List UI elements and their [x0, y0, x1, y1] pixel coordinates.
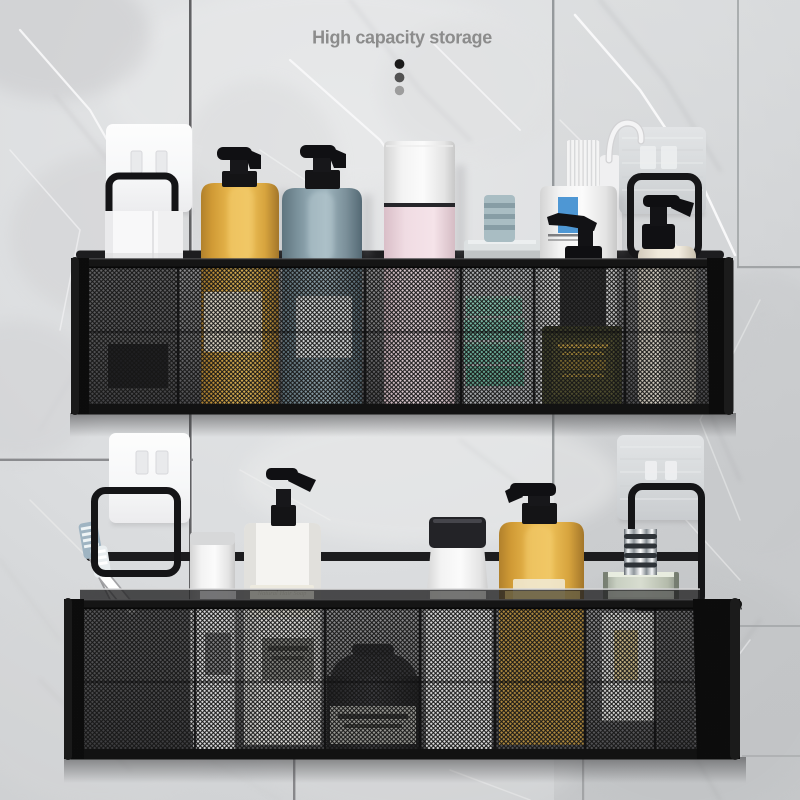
- svg-text:High capacity storage: High capacity storage: [312, 28, 492, 48]
